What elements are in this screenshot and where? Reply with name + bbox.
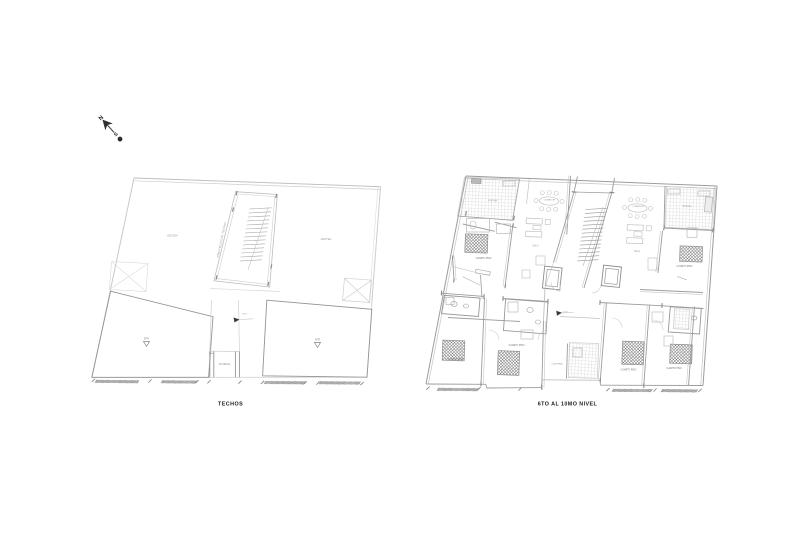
svg-text:CUARTO PISO: CUARTO PISO	[666, 367, 682, 370]
svg-text:COMEDOR: COMEDOR	[632, 206, 644, 208]
svg-text:N.P.T.: N.P.T.	[242, 314, 248, 316]
svg-text:AZOTEA: AZOTEA	[167, 234, 178, 238]
svg-text:COCINA: COCINA	[488, 199, 498, 202]
svg-text:BTR: BTR	[144, 338, 149, 341]
svg-text:SALA: SALA	[532, 245, 539, 248]
svg-text:BTR: BTR	[315, 339, 320, 342]
svg-text:COMEDOR: COMEDOR	[544, 200, 556, 202]
svg-text:CISTERNA: CISTERNA	[551, 363, 563, 366]
svg-text:CISTERNA: CISTERNA	[219, 363, 231, 366]
svg-text:CUARTO PISO: CUARTO PISO	[476, 257, 492, 260]
svg-text:6TO AL 10MO NIVEL: 6TO AL 10MO NIVEL	[538, 401, 598, 407]
svg-text:CUARTO PISO: CUARTO PISO	[677, 265, 693, 268]
svg-text:CUARTO PISO: CUARTO PISO	[621, 368, 637, 371]
svg-text:TECHOS: TECHOS	[218, 401, 243, 407]
svg-text:CUARTO PISO: CUARTO PISO	[509, 344, 525, 347]
svg-text:CUARTO PISO: CUARTO PISO	[448, 358, 464, 361]
svg-text:AZOTEA: AZOTEA	[321, 237, 332, 241]
svg-text:SALA: SALA	[634, 250, 641, 253]
svg-text:COCINA: COCINA	[682, 205, 692, 208]
